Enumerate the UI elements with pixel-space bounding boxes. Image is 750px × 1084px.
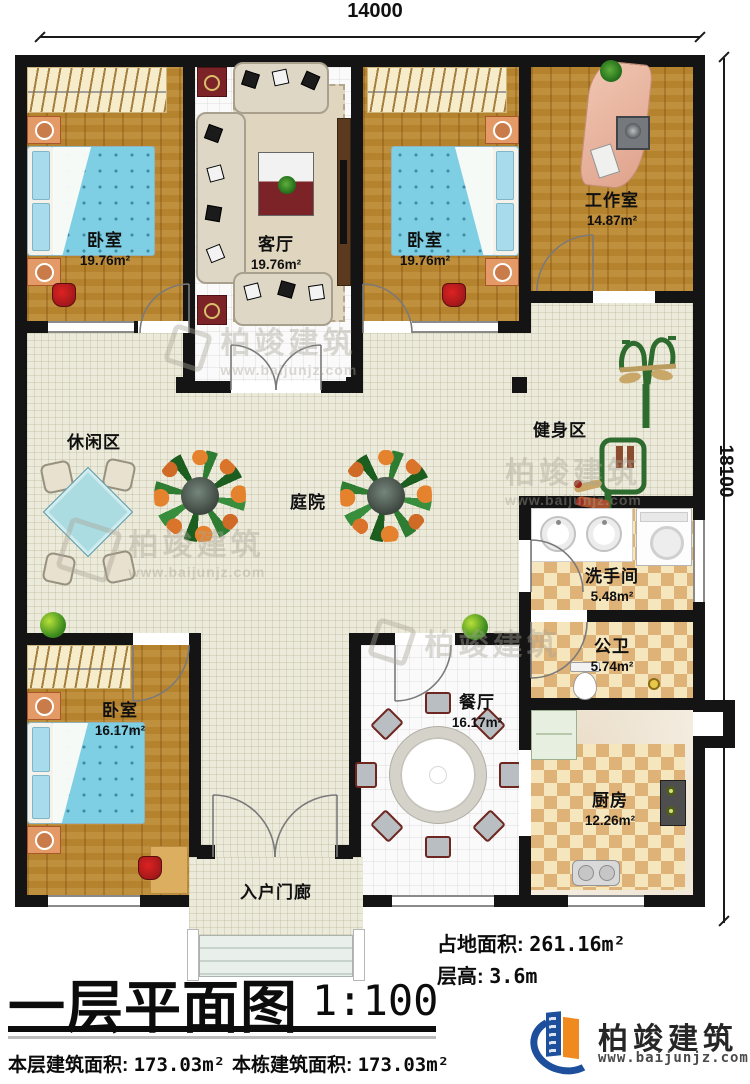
door-swing-layer — [0, 0, 750, 1084]
floor-plan-sheet: 14000 18100 — [0, 0, 750, 1084]
